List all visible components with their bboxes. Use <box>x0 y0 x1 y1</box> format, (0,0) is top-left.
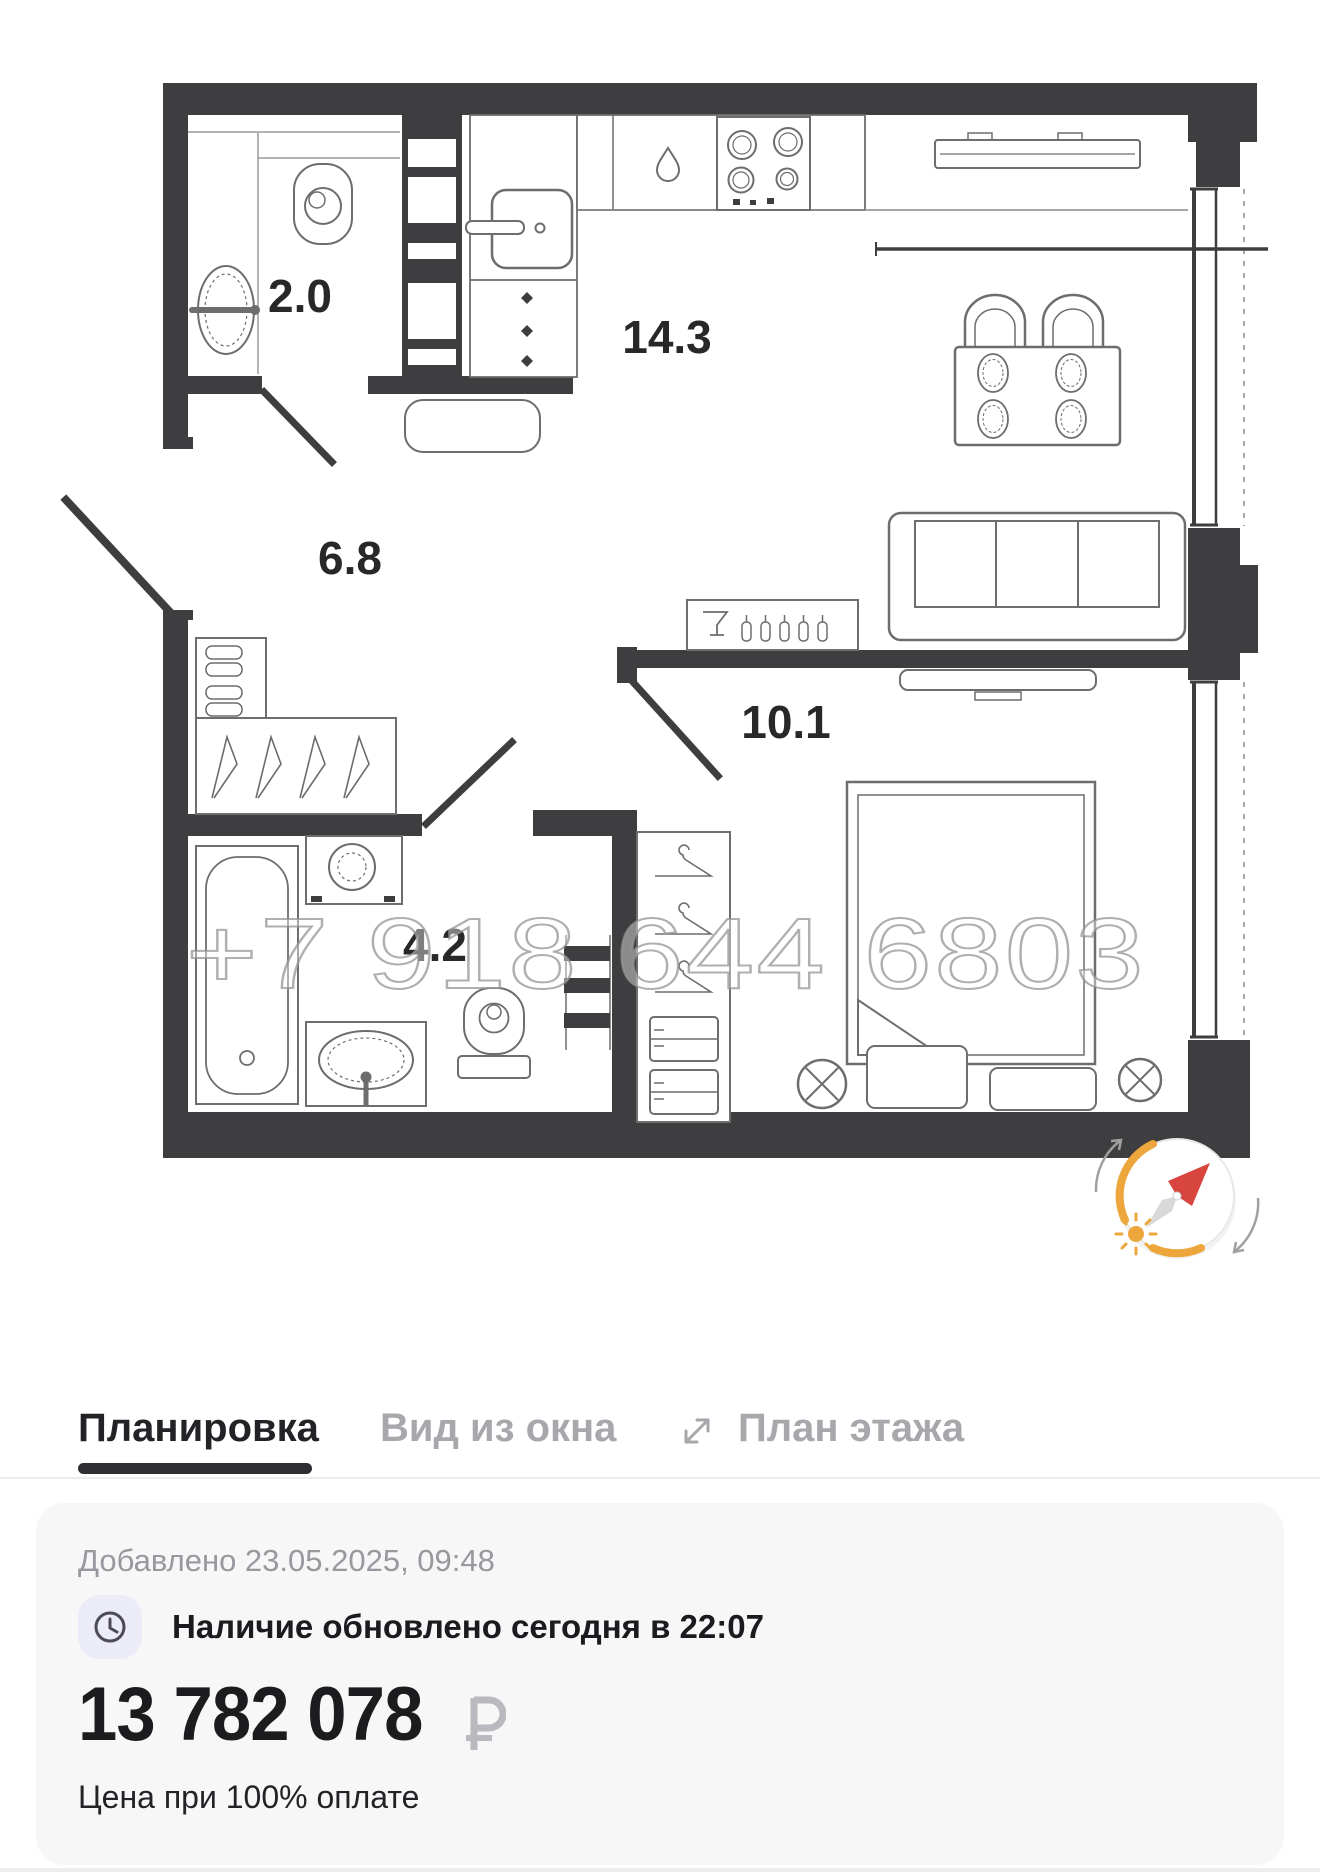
added-date: Добавлено 23.05.2025, 09:48 <box>78 1543 495 1579</box>
toilet-icon <box>294 164 352 244</box>
coat-rack-icon <box>196 718 396 814</box>
expand-icon[interactable] <box>678 1412 716 1450</box>
bench-icon-2 <box>990 1068 1096 1110</box>
listing-info-card: Добавлено 23.05.2025, 09:48 Наличие обно… <box>36 1503 1284 1865</box>
plant-icon <box>798 1059 1161 1108</box>
floor-plan-image[interactable]: 2.0 6.8 14.3 10.1 4.2 +7 918 644 6803 <box>0 0 1320 1300</box>
sofa-icon <box>889 513 1185 640</box>
clock-icon <box>78 1595 142 1659</box>
hallway-furniture <box>196 400 540 814</box>
bath-sink-icon <box>306 1022 426 1106</box>
tv-icon <box>900 670 1096 700</box>
room-label-bedroom: 10.1 <box>741 696 831 748</box>
washing-machine-icon <box>306 836 402 904</box>
ruble-sign-icon <box>464 1696 506 1752</box>
bench-icon <box>867 1046 967 1108</box>
watermark-phone: +7 918 644 6803 <box>186 898 1146 1010</box>
shoe-cabinet-icon <box>196 638 266 718</box>
availability-status: Наличие обновлено сегодня в 22:07 <box>172 1608 764 1646</box>
shelf-unit-icon <box>402 115 462 376</box>
tab-window-view[interactable]: Вид из окна <box>380 1406 616 1451</box>
wc-sink-icon <box>192 266 259 354</box>
tabs-divider <box>0 1477 1320 1479</box>
tab-layout[interactable]: Планировка <box>78 1406 319 1451</box>
next-card-edge <box>0 1868 1320 1872</box>
room-label-kitchen-living: 14.3 <box>622 311 712 363</box>
room-label-wc: 2.0 <box>268 270 332 322</box>
kitchen-counter <box>466 115 1188 377</box>
stove-icon <box>717 117 810 210</box>
room-label-hallway: 6.8 <box>318 532 382 584</box>
sideboard-icon <box>687 600 858 650</box>
sun-icon <box>1116 1214 1156 1254</box>
pouf-icon <box>405 400 540 452</box>
price-note: Цена при 100% оплате <box>78 1779 419 1816</box>
price-value: 13 782 078 <box>78 1671 422 1758</box>
active-tab-underline <box>78 1463 312 1474</box>
wc-room <box>188 132 400 374</box>
tab-floor-plan[interactable]: План этажа <box>738 1406 964 1451</box>
hood-shelf-icon <box>935 133 1140 168</box>
dining-table-icon <box>955 295 1120 445</box>
